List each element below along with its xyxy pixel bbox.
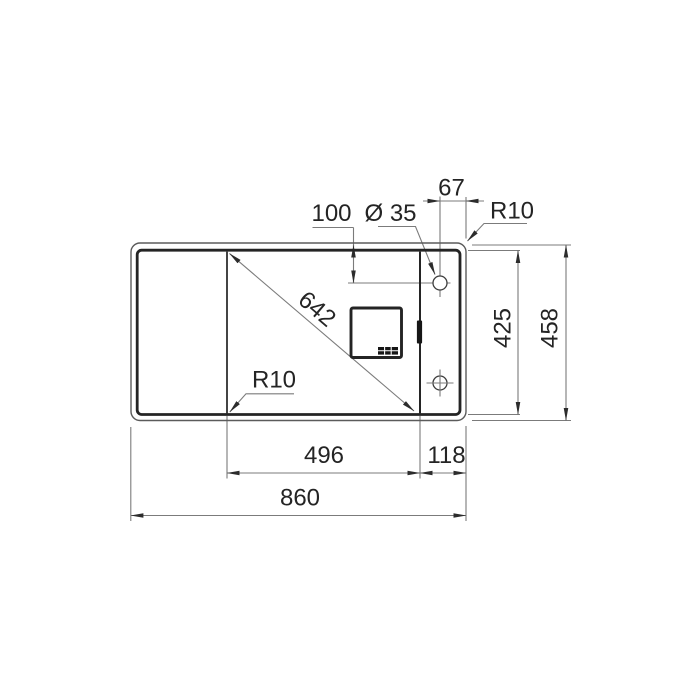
- tap-hole-bottom: [427, 370, 454, 397]
- dimension-labels: 67 R10 100 Ø 35 642 R10 425 458 496 118 …: [252, 175, 564, 512]
- dim-label-diameter-35: Ø 35: [364, 200, 416, 227]
- sink-outer-rim: [131, 243, 466, 421]
- dim-label-r10-inner: R10: [252, 367, 296, 394]
- dim-label-118: 118: [427, 442, 465, 469]
- waste-square: [351, 308, 402, 358]
- technical-drawing-canvas: 67 R10 100 Ø 35 642 R10 425 458 496 118 …: [0, 0, 700, 700]
- dim-label-r10-outer: R10: [490, 198, 534, 225]
- leader-bowl-corner-radius: [230, 394, 294, 412]
- dim-label-67: 67: [438, 175, 465, 202]
- leader-outer-corner-radius: [468, 224, 528, 242]
- dim-label-458: 458: [537, 308, 564, 348]
- waste-logo-mark: [378, 347, 398, 355]
- tap-hole-top: [433, 276, 447, 290]
- overflow-slot: [417, 321, 422, 344]
- dim-label-425: 425: [490, 308, 517, 348]
- sink-body: [131, 243, 466, 421]
- sink-inner-edge: [137, 250, 460, 414]
- dim-label-496: 496: [304, 442, 344, 469]
- dim-label-860: 860: [280, 485, 320, 512]
- dim-label-100: 100: [311, 200, 351, 227]
- spec-sheet-page: 67 R10 100 Ø 35 642 R10 425 458 496 118 …: [0, 0, 700, 700]
- dimension-layer: [131, 197, 571, 522]
- dim-label-642: 642: [293, 286, 341, 333]
